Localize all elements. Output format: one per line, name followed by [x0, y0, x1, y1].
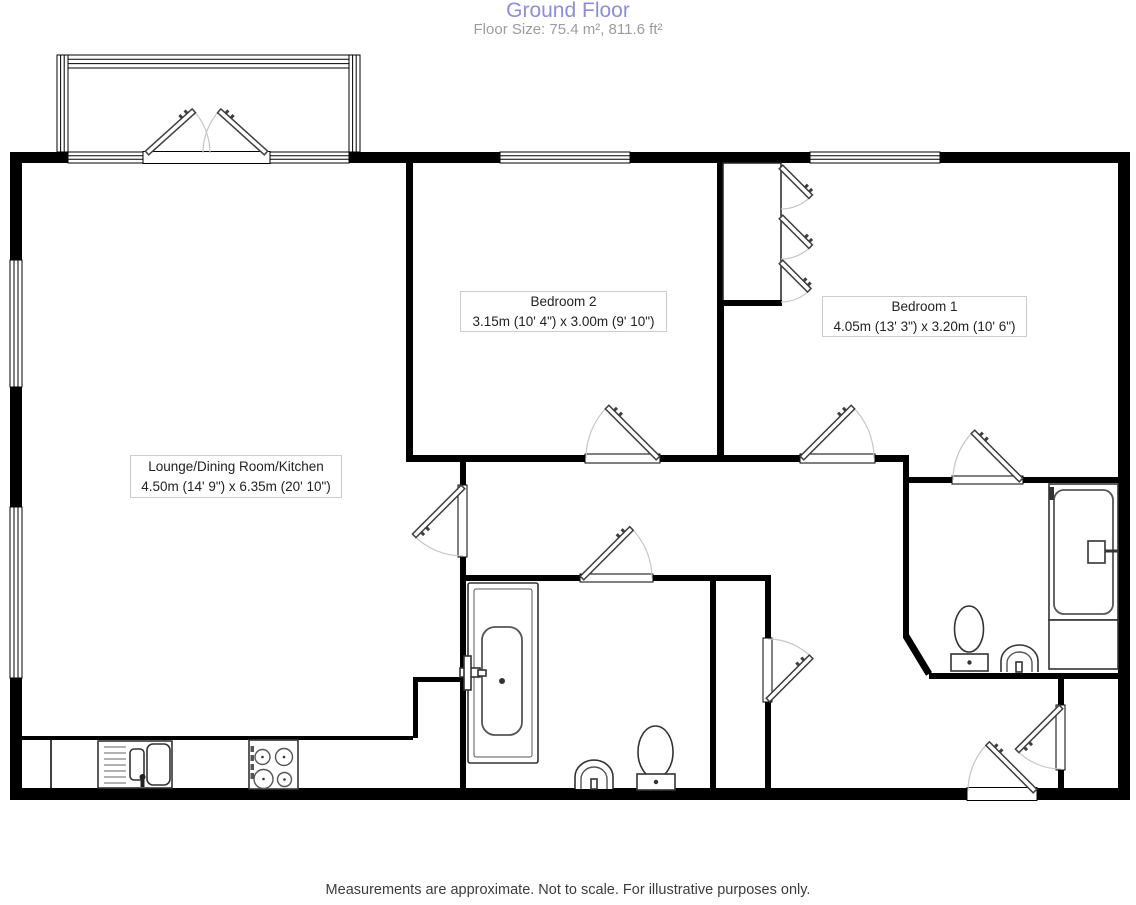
bathroom-sink	[575, 760, 613, 789]
door-ensuite	[952, 427, 1026, 484]
ensuite-fixtures	[951, 484, 1119, 672]
room-name: Lounge/Dining Room/Kitchen	[131, 457, 341, 476]
floorplan-page: Ground Floor Floor Size: 75.4 m², 811.6 …	[0, 0, 1136, 905]
wardrobe	[718, 162, 815, 306]
door-bedroom-1	[797, 402, 875, 463]
bathroom-toilet	[637, 726, 675, 790]
balcony-french-doors	[143, 106, 271, 163]
kitchen-sink-unit	[98, 741, 172, 788]
room-dimensions: 4.50m (14' 9") x 6.35m (20' 10")	[131, 477, 341, 496]
room-label-bedroom-2: Bedroom 2 3.15m (10' 4") x 3.00m (9' 10"…	[460, 291, 667, 332]
doors	[143, 106, 1066, 800]
shower	[1049, 484, 1119, 620]
bathtub	[460, 583, 538, 763]
window-lounge-lower	[10, 507, 22, 678]
door-cupboard	[763, 638, 813, 702]
ensuite-cabinet	[1049, 620, 1118, 669]
window-bedroom-1	[810, 152, 940, 163]
door-bedroom-2	[585, 402, 663, 463]
window-top-left-2	[270, 152, 349, 163]
floorplan-drawing	[0, 0, 1136, 905]
ensuite-sink	[1001, 645, 1038, 672]
window-top-left	[68, 152, 143, 163]
door-lounge	[412, 485, 467, 557]
kitchen-hob	[249, 740, 298, 789]
room-dimensions: 4.05m (13' 3") x 3.20m (10' 6")	[823, 317, 1026, 336]
bathroom-fixtures	[460, 583, 675, 790]
window-lounge-upper	[10, 260, 22, 387]
door-hall-closet	[1015, 705, 1065, 770]
ensuite-toilet	[951, 606, 988, 671]
disclaimer: Measurements are approximate. Not to sca…	[0, 882, 1136, 898]
room-label-bedroom-1: Bedroom 1 4.05m (13' 3") x 3.20m (10' 6"…	[822, 296, 1027, 337]
door-bathroom	[577, 524, 653, 582]
room-dimensions: 3.15m (10' 4") x 3.00m (9' 10")	[461, 312, 666, 331]
door-entrance	[967, 739, 1040, 800]
window-bedroom-2	[500, 152, 630, 163]
room-label-lounge: Lounge/Dining Room/Kitchen 4.50m (14' 9"…	[130, 455, 342, 498]
room-name: Bedroom 2	[461, 292, 666, 311]
kitchen-fixtures	[51, 740, 298, 789]
room-name: Bedroom 1	[823, 297, 1026, 316]
